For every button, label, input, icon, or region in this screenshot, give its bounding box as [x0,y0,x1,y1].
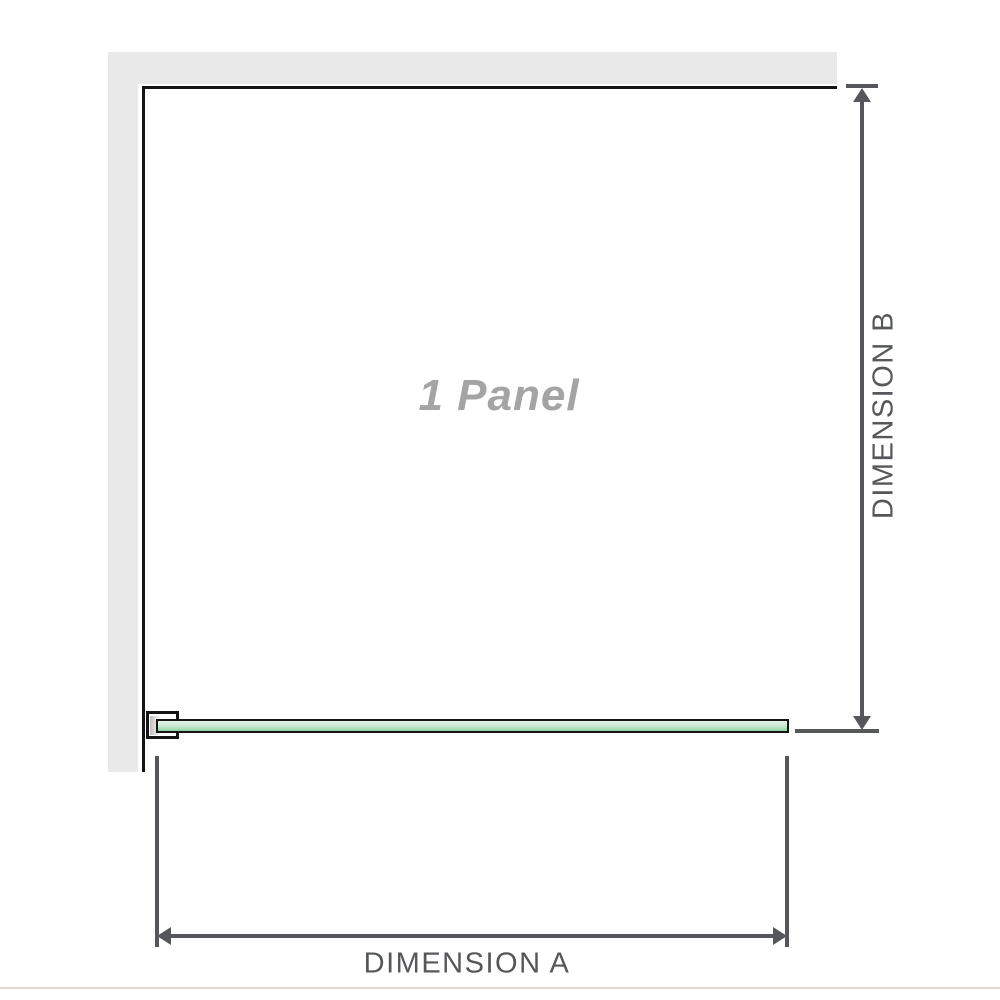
dim-a-arrow-line [167,934,777,938]
dim-a-extension-line-right [785,756,789,947]
floor-baseline [0,987,1000,989]
shower-panel-dimension-diagram: 1 Panel DIMENSION B DIMENSION A [0,0,1000,1000]
dim-a-extension-line-left [155,756,159,947]
panel-outline-left-border [142,86,145,772]
glass-panel [156,719,789,733]
wall-side-bar [108,52,138,772]
wall-top-bar [108,52,837,84]
dim-b-arrowhead-up-icon [853,88,871,102]
dim-b-arrow-line [860,97,864,719]
panel-outline-top-border [142,86,837,89]
panel-count-label: 1 Panel [418,371,579,421]
dim-b-arrowhead-down-icon [853,716,871,730]
dim-a-label: DIMENSION A [364,948,571,981]
dim-b-label: DIMENSION B [868,311,901,519]
dim-a-arrowhead-left-icon [157,927,171,945]
dim-a-arrowhead-right-icon [773,927,787,945]
